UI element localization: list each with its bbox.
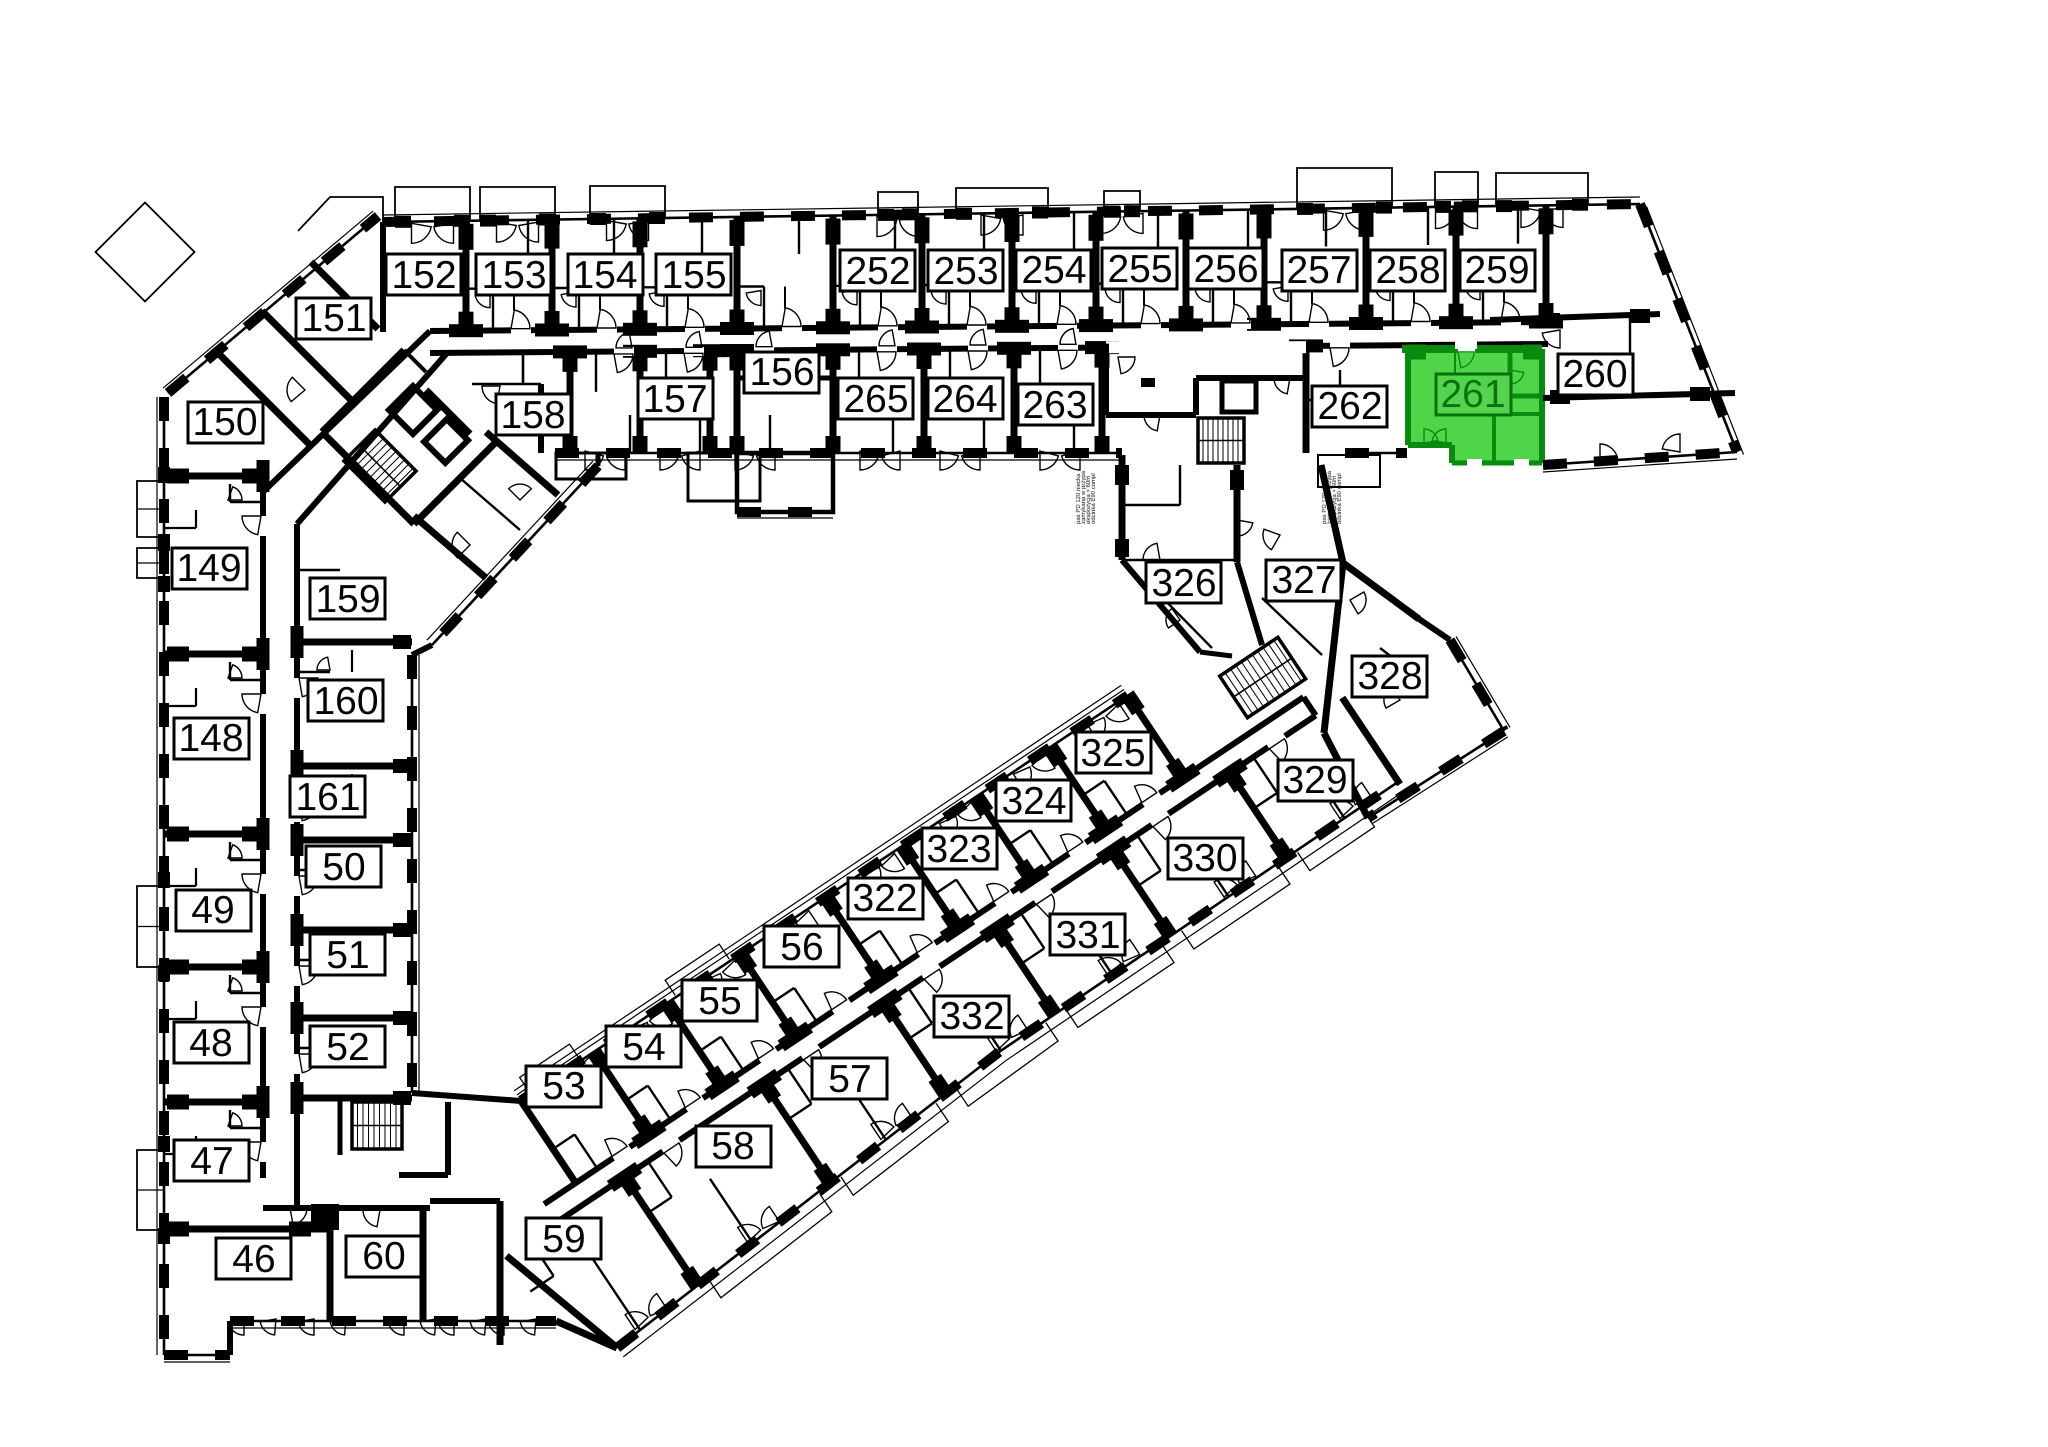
svg-text:odcinka E90 compl: odcinka E90 compl <box>1090 473 1097 524</box>
svg-text:160: 160 <box>313 680 378 723</box>
svg-text:150: 150 <box>192 401 257 444</box>
svg-text:325: 325 <box>1080 732 1145 775</box>
svg-text:60: 60 <box>362 1235 405 1278</box>
svg-text:260: 260 <box>1562 353 1627 396</box>
svg-text:47: 47 <box>190 1140 233 1183</box>
svg-text:258: 258 <box>1375 249 1440 292</box>
svg-text:156: 156 <box>749 351 814 394</box>
svg-text:151: 151 <box>301 297 366 340</box>
svg-text:255: 255 <box>1107 248 1172 291</box>
svg-text:52: 52 <box>326 1026 369 1069</box>
svg-text:152: 152 <box>391 254 456 297</box>
svg-text:261: 261 <box>1440 373 1505 416</box>
svg-text:58: 58 <box>711 1125 754 1168</box>
svg-text:51: 51 <box>326 934 369 977</box>
svg-text:256: 256 <box>1193 248 1258 291</box>
svg-text:155: 155 <box>661 254 726 297</box>
svg-text:262: 262 <box>1317 385 1382 428</box>
svg-text:56: 56 <box>780 926 823 969</box>
svg-text:259: 259 <box>1464 249 1529 292</box>
svg-text:253: 253 <box>933 250 998 293</box>
svg-text:324: 324 <box>1001 780 1066 823</box>
svg-text:257: 257 <box>1286 249 1351 292</box>
svg-text:46: 46 <box>232 1238 275 1281</box>
svg-text:263: 263 <box>1022 384 1087 427</box>
svg-text:158: 158 <box>500 394 565 437</box>
svg-text:53: 53 <box>542 1065 585 1108</box>
svg-text:254: 254 <box>1021 249 1086 292</box>
svg-text:159: 159 <box>315 578 380 621</box>
svg-text:322: 322 <box>852 877 917 920</box>
svg-text:323: 323 <box>926 828 991 871</box>
svg-text:154: 154 <box>572 254 637 297</box>
svg-text:54: 54 <box>622 1026 665 1069</box>
svg-text:252: 252 <box>845 250 910 293</box>
svg-text:50: 50 <box>322 846 365 889</box>
svg-text:49: 49 <box>191 889 234 932</box>
svg-text:55: 55 <box>698 980 741 1023</box>
svg-text:328: 328 <box>1357 655 1422 698</box>
svg-text:264: 264 <box>932 378 997 421</box>
svg-text:329: 329 <box>1282 759 1347 802</box>
svg-text:148: 148 <box>178 717 243 760</box>
svg-text:149: 149 <box>176 547 241 590</box>
svg-text:48: 48 <box>189 1022 232 1065</box>
svg-text:59: 59 <box>542 1218 585 1261</box>
svg-text:326: 326 <box>1151 562 1216 605</box>
svg-text:265: 265 <box>843 378 908 421</box>
svg-text:327: 327 <box>1271 559 1336 602</box>
svg-text:157: 157 <box>642 378 707 421</box>
svg-text:153: 153 <box>481 254 546 297</box>
svg-text:332: 332 <box>939 995 1004 1038</box>
svg-text:330: 330 <box>1172 837 1237 880</box>
svg-text:331: 331 <box>1055 914 1120 957</box>
svg-text:161: 161 <box>295 776 360 819</box>
svg-text:57: 57 <box>828 1058 871 1101</box>
svg-text:odcinka E90 compl: odcinka E90 compl <box>1336 473 1343 524</box>
